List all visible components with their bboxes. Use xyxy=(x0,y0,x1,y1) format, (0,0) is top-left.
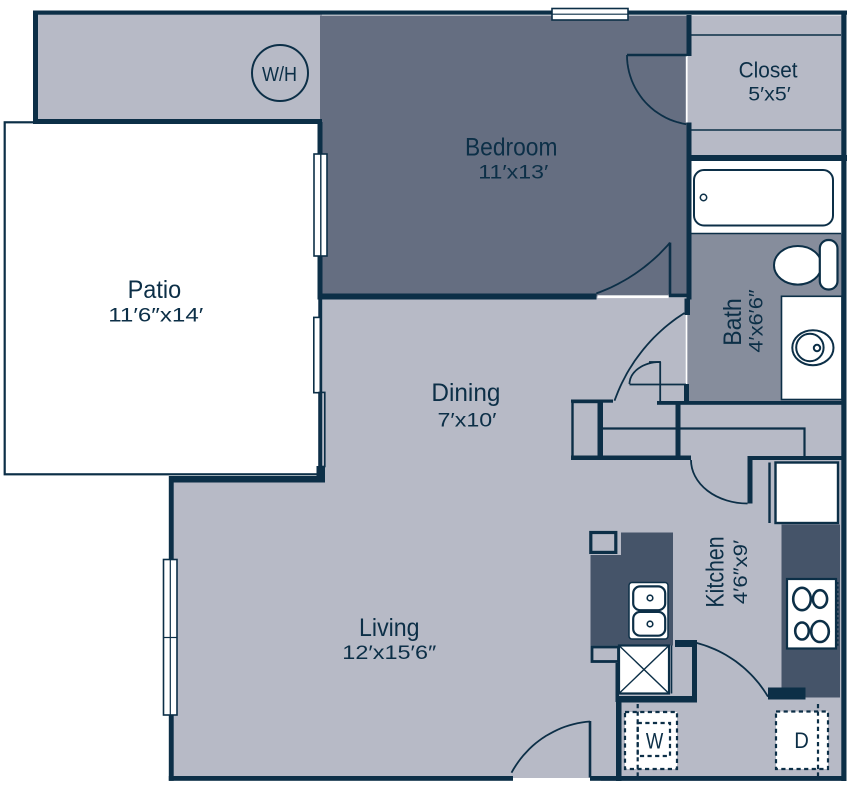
svg-text:Bedroom: Bedroom xyxy=(465,134,558,162)
svg-text:W: W xyxy=(646,728,664,753)
svg-text:5′x5′: 5′x5′ xyxy=(748,85,791,106)
svg-text:D: D xyxy=(794,728,809,753)
svg-text:Bath: Bath xyxy=(719,298,747,346)
svg-text:11′6″x14′: 11′6″x14′ xyxy=(108,306,204,327)
svg-text:11′x13′: 11′x13′ xyxy=(478,163,549,184)
svg-text:Patio: Patio xyxy=(128,276,182,304)
svg-text:12′x15′6″: 12′x15′6″ xyxy=(342,643,436,664)
svg-text:7′x10′: 7′x10′ xyxy=(438,411,498,432)
svg-text:4′x6′6″: 4′x6′6″ xyxy=(747,289,768,353)
svg-text:W/H: W/H xyxy=(262,63,297,86)
svg-text:Living: Living xyxy=(359,614,420,642)
svg-text:Closet: Closet xyxy=(739,57,798,82)
svg-text:4′6″x9′: 4′6″x9′ xyxy=(731,539,752,604)
svg-text:Kitchen: Kitchen xyxy=(702,536,730,607)
svg-text:Dining: Dining xyxy=(431,379,500,407)
